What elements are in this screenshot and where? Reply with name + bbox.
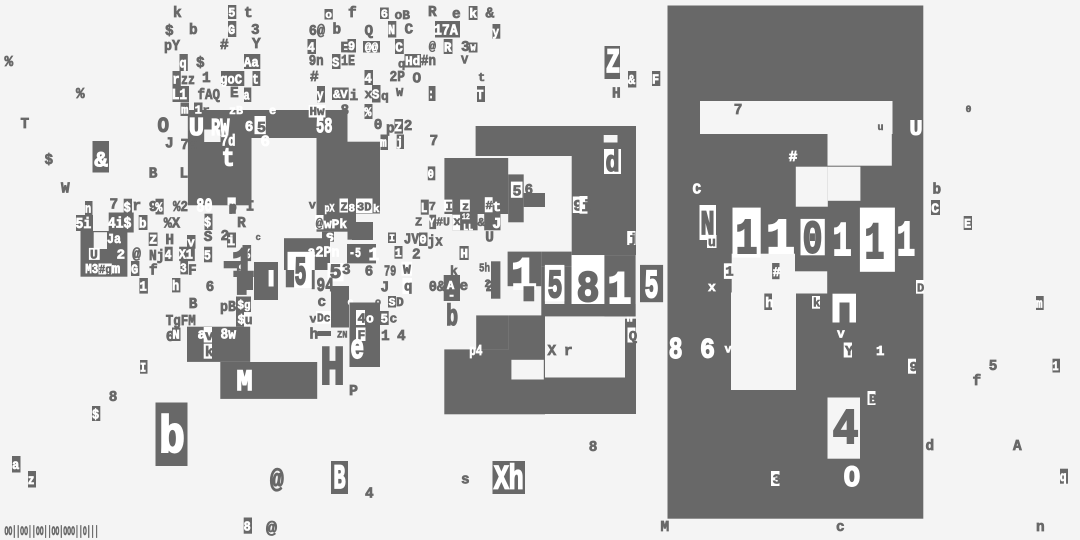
svg-text:@@: @@ bbox=[365, 43, 379, 55]
svg-text:j: j bbox=[629, 232, 637, 247]
svg-text:x: x bbox=[454, 215, 461, 229]
svg-text:Y: Y bbox=[429, 215, 435, 230]
svg-text:Z: Z bbox=[149, 233, 157, 248]
svg-text:9: 9 bbox=[910, 360, 918, 376]
svg-text:1: 1 bbox=[381, 329, 390, 345]
svg-text:8w: 8w bbox=[221, 327, 237, 344]
svg-text:1: 1 bbox=[195, 103, 202, 117]
svg-text:O: O bbox=[413, 72, 422, 88]
svg-text:5h: 5h bbox=[479, 262, 490, 276]
svg-text:pX: pX bbox=[325, 204, 335, 216]
svg-text:@: @ bbox=[266, 520, 277, 539]
svg-text:jx: jx bbox=[428, 235, 443, 251]
svg-text:T: T bbox=[21, 117, 30, 133]
svg-text:6@: 6@ bbox=[309, 24, 326, 40]
svg-text:L1: L1 bbox=[172, 87, 187, 104]
svg-text:n: n bbox=[85, 201, 91, 216]
svg-text:1: 1 bbox=[736, 212, 758, 269]
svg-text:W: W bbox=[396, 86, 404, 100]
svg-text:2: 2 bbox=[412, 248, 421, 264]
svg-text:0&: 0& bbox=[429, 280, 446, 296]
svg-text:P: P bbox=[349, 383, 358, 400]
svg-text:I: I bbox=[389, 234, 395, 245]
svg-text::: : bbox=[428, 87, 434, 102]
svg-text:d: d bbox=[926, 439, 935, 455]
svg-text:1: 1 bbox=[139, 280, 146, 296]
svg-text:1: 1 bbox=[833, 216, 852, 270]
svg-text:t: t bbox=[244, 6, 253, 22]
svg-text:%: % bbox=[76, 87, 85, 103]
svg-text:k: k bbox=[205, 345, 213, 361]
svg-text:#n: #n bbox=[421, 54, 436, 70]
svg-text:8: 8 bbox=[669, 333, 683, 368]
svg-text:3D: 3D bbox=[357, 201, 372, 215]
svg-text:b: b bbox=[933, 183, 942, 199]
svg-text:JV: JV bbox=[404, 233, 420, 249]
svg-text:#: # bbox=[773, 265, 781, 280]
svg-text:O: O bbox=[158, 114, 170, 139]
svg-text:4: 4 bbox=[365, 487, 374, 503]
svg-text:5: 5 bbox=[645, 265, 659, 310]
svg-text:oB: oB bbox=[395, 8, 411, 23]
svg-text:W: W bbox=[61, 182, 70, 198]
svg-text:a: a bbox=[243, 89, 250, 105]
svg-text:e: e bbox=[452, 7, 461, 23]
svg-text:u: u bbox=[708, 235, 716, 250]
svg-text:t: t bbox=[252, 72, 259, 88]
svg-text:&: & bbox=[95, 149, 109, 174]
svg-text:m: m bbox=[181, 103, 188, 117]
svg-text:S: S bbox=[389, 298, 396, 310]
svg-text:$g: $g bbox=[238, 299, 251, 313]
svg-text:F: F bbox=[652, 72, 659, 88]
svg-text:7: 7 bbox=[429, 200, 436, 214]
svg-text:0: 0 bbox=[419, 233, 426, 248]
svg-text:z: z bbox=[28, 473, 35, 489]
svg-text:$: $ bbox=[45, 153, 54, 169]
svg-text:q: q bbox=[404, 280, 412, 296]
svg-text:k: k bbox=[373, 204, 380, 216]
svg-text:a2Pn: a2Pn bbox=[308, 245, 340, 262]
svg-text:D: D bbox=[917, 282, 924, 296]
svg-text:%: % bbox=[365, 105, 372, 120]
svg-text:58: 58 bbox=[316, 115, 333, 140]
svg-text:3: 3 bbox=[180, 261, 187, 276]
svg-text:4: 4 bbox=[365, 71, 372, 87]
svg-text:5: 5 bbox=[295, 252, 307, 297]
svg-text:q: q bbox=[381, 89, 389, 104]
svg-text:t: t bbox=[222, 144, 235, 174]
svg-text:M3: M3 bbox=[85, 262, 98, 278]
svg-text:4: 4 bbox=[833, 402, 859, 459]
svg-text:8: 8 bbox=[109, 390, 118, 406]
svg-text:Q: Q bbox=[629, 329, 637, 345]
svg-text:b: b bbox=[189, 23, 198, 39]
svg-text:r: r bbox=[564, 344, 573, 360]
svg-text:8: 8 bbox=[341, 104, 350, 120]
svg-text:q: q bbox=[1060, 470, 1067, 486]
svg-text:zB: zB bbox=[229, 104, 243, 118]
svg-text:M: M bbox=[661, 520, 670, 536]
svg-text:3: 3 bbox=[773, 473, 781, 489]
svg-text:Dc: Dc bbox=[317, 312, 331, 326]
svg-text:3: 3 bbox=[342, 263, 351, 279]
svg-text:J: J bbox=[381, 281, 390, 297]
svg-text:1: 1 bbox=[1052, 359, 1058, 374]
svg-text:r: r bbox=[172, 72, 179, 88]
svg-text:$: $ bbox=[165, 24, 174, 40]
svg-text:B: B bbox=[149, 167, 158, 183]
svg-text:r: r bbox=[133, 199, 142, 215]
svg-text:S: S bbox=[204, 230, 213, 246]
svg-text:0: 0 bbox=[803, 215, 823, 267]
svg-text:t: t bbox=[493, 200, 501, 216]
svg-text:R: R bbox=[428, 5, 437, 21]
svg-text:h: h bbox=[172, 279, 179, 295]
svg-text:6: 6 bbox=[365, 265, 374, 281]
svg-text:i: i bbox=[582, 198, 592, 216]
svg-text:v: v bbox=[725, 343, 732, 357]
svg-text:Ja: Ja bbox=[107, 232, 121, 248]
svg-text:m: m bbox=[380, 136, 386, 151]
svg-text:F: F bbox=[188, 263, 197, 279]
svg-text:t: t bbox=[478, 71, 485, 85]
svg-text:X: X bbox=[548, 344, 557, 360]
svg-text:5: 5 bbox=[989, 359, 998, 375]
svg-text:Z: Z bbox=[415, 216, 422, 230]
svg-text:C: C bbox=[693, 183, 702, 199]
svg-text:n: n bbox=[1036, 520, 1045, 536]
svg-text:Aa: Aa bbox=[244, 55, 260, 71]
svg-text:y: y bbox=[493, 25, 500, 40]
svg-text:$: $ bbox=[196, 56, 205, 72]
svg-text:8: 8 bbox=[577, 265, 600, 315]
svg-text:1: 1 bbox=[725, 265, 733, 281]
svg-text:fAQ: fAQ bbox=[198, 88, 221, 104]
svg-text:5: 5 bbox=[548, 265, 563, 310]
svg-text:N: N bbox=[172, 328, 179, 343]
svg-text:E: E bbox=[964, 216, 971, 231]
svg-text:u: u bbox=[245, 313, 253, 328]
svg-text:C: C bbox=[405, 23, 414, 39]
svg-text:pB: pB bbox=[220, 300, 236, 316]
svg-text:$: $ bbox=[92, 407, 99, 423]
svg-text:9n: 9n bbox=[309, 54, 324, 70]
svg-text:v: v bbox=[837, 327, 845, 342]
svg-text:@: @ bbox=[270, 465, 284, 495]
svg-text:c: c bbox=[318, 295, 327, 311]
svg-text:#: # bbox=[789, 150, 798, 166]
svg-text:b: b bbox=[159, 409, 185, 468]
svg-text:0: 0 bbox=[428, 167, 434, 182]
svg-text:f: f bbox=[348, 6, 357, 22]
svg-text:p4: p4 bbox=[469, 343, 482, 360]
svg-text:4i$: 4i$ bbox=[108, 216, 132, 233]
svg-text:N: N bbox=[388, 23, 395, 39]
svg-text:d: d bbox=[606, 147, 620, 181]
svg-text:-5: -5 bbox=[349, 246, 361, 262]
svg-text:5i: 5i bbox=[76, 216, 92, 233]
svg-text:W: W bbox=[470, 44, 476, 54]
svg-text:1: 1 bbox=[897, 214, 916, 271]
svg-text:8: 8 bbox=[244, 519, 251, 535]
svg-text:B: B bbox=[189, 297, 198, 313]
svg-text:q: q bbox=[179, 56, 186, 72]
svg-text:G: G bbox=[228, 23, 235, 39]
svg-text:#: # bbox=[310, 70, 319, 86]
svg-text:4: 4 bbox=[358, 312, 366, 328]
svg-text:c: c bbox=[390, 312, 398, 327]
svg-text:@: @ bbox=[316, 217, 323, 231]
svg-text:y: y bbox=[317, 88, 324, 104]
svg-text:I: I bbox=[446, 200, 453, 214]
svg-text:x: x bbox=[708, 280, 716, 295]
svg-text:J: J bbox=[492, 216, 501, 233]
svg-text:k: k bbox=[450, 264, 458, 279]
svg-text:9: 9 bbox=[348, 39, 355, 54]
svg-text:b: b bbox=[139, 216, 147, 232]
svg-text:v: v bbox=[310, 313, 317, 327]
svg-text:k: k bbox=[813, 297, 820, 311]
svg-text:7x: 7x bbox=[181, 138, 198, 154]
svg-text:&: & bbox=[478, 216, 486, 230]
svg-text:O: O bbox=[844, 462, 860, 496]
svg-text:i: i bbox=[350, 89, 359, 105]
svg-text:#g: #g bbox=[99, 263, 112, 277]
svg-text:5: 5 bbox=[228, 5, 235, 20]
svg-text:#: # bbox=[220, 38, 229, 54]
svg-text:H: H bbox=[460, 246, 468, 261]
svg-text:6: 6 bbox=[245, 120, 254, 136]
svg-text:e: e bbox=[269, 104, 276, 118]
svg-text:H: H bbox=[612, 87, 621, 103]
svg-text:6: 6 bbox=[381, 7, 388, 21]
svg-text:B: B bbox=[334, 461, 346, 499]
svg-text:c: c bbox=[256, 233, 261, 243]
svg-text:Z: Z bbox=[341, 201, 348, 215]
svg-text:b: b bbox=[446, 301, 458, 335]
svg-text:4: 4 bbox=[165, 247, 172, 262]
svg-text:s: s bbox=[461, 473, 470, 489]
svg-text:U: U bbox=[90, 248, 98, 263]
svg-text:Z: Z bbox=[395, 120, 402, 136]
svg-text:%: % bbox=[155, 200, 162, 216]
svg-text:A: A bbox=[1013, 439, 1022, 455]
svg-text:Nj: Nj bbox=[149, 249, 165, 265]
svg-text:C: C bbox=[395, 40, 403, 56]
svg-text:C: C bbox=[931, 201, 939, 217]
svg-text:Q: Q bbox=[365, 24, 374, 40]
svg-text:u: u bbox=[878, 123, 884, 134]
svg-text:2: 2 bbox=[404, 119, 413, 135]
svg-text:%2: %2 bbox=[173, 200, 188, 216]
svg-text:6: 6 bbox=[260, 133, 270, 151]
svg-text:&V: &V bbox=[333, 88, 348, 102]
svg-text:0: 0 bbox=[374, 118, 383, 134]
svg-text:h: h bbox=[765, 296, 773, 312]
svg-text:j: j bbox=[396, 135, 402, 150]
svg-text:D: D bbox=[396, 295, 404, 310]
svg-text:1: 1 bbox=[608, 265, 632, 317]
svg-text:k: k bbox=[469, 6, 477, 21]
svg-text:&: & bbox=[486, 7, 495, 23]
svg-text:B: B bbox=[869, 392, 877, 407]
svg-text:f: f bbox=[973, 374, 982, 390]
svg-text:a: a bbox=[12, 458, 20, 474]
svg-text:G: G bbox=[131, 262, 138, 278]
svg-text:4: 4 bbox=[397, 329, 406, 345]
svg-text:E: E bbox=[230, 86, 239, 102]
svg-text:v: v bbox=[205, 329, 214, 345]
svg-text:z: z bbox=[462, 200, 469, 214]
svg-text:8: 8 bbox=[589, 440, 598, 456]
svg-text:1: 1 bbox=[202, 71, 211, 87]
svg-text:5: 5 bbox=[513, 184, 522, 201]
svg-text:S: S bbox=[332, 55, 339, 71]
svg-text:J: J bbox=[165, 137, 174, 153]
svg-text:I: I bbox=[140, 360, 146, 375]
svg-text:U: U bbox=[910, 117, 923, 142]
svg-text:1: 1 bbox=[865, 215, 885, 274]
svg-text:b: b bbox=[333, 23, 342, 39]
svg-text:7: 7 bbox=[430, 134, 439, 150]
svg-text:5: 5 bbox=[204, 248, 211, 264]
svg-text:1: 1 bbox=[766, 212, 795, 269]
svg-text:6: 6 bbox=[525, 183, 534, 199]
svg-text:f: f bbox=[149, 263, 158, 279]
svg-text:12: 12 bbox=[462, 213, 470, 222]
svg-text:Y: Y bbox=[845, 344, 854, 360]
svg-text:1E: 1E bbox=[341, 54, 355, 70]
svg-text:S: S bbox=[372, 88, 379, 104]
svg-text:I: I bbox=[246, 199, 255, 215]
svg-text:T: T bbox=[477, 88, 484, 104]
svg-text:v: v bbox=[309, 199, 316, 213]
svg-text:7: 7 bbox=[734, 103, 743, 119]
svg-text:pY: pY bbox=[164, 39, 180, 55]
svg-text:LL: LL bbox=[463, 223, 473, 233]
svg-text:h: h bbox=[310, 328, 319, 344]
svg-text:8: 8 bbox=[349, 204, 356, 216]
svg-text:%X: %X bbox=[164, 217, 181, 233]
svg-text:Hd: Hd bbox=[405, 54, 420, 69]
svg-text:o: o bbox=[325, 10, 332, 22]
svg-text:M: M bbox=[237, 366, 253, 400]
svg-text:Z: Z bbox=[606, 45, 620, 83]
svg-text:o: o bbox=[366, 312, 374, 327]
svg-text:1: 1 bbox=[395, 246, 402, 260]
svg-text:79: 79 bbox=[384, 265, 396, 281]
svg-text:p: p bbox=[229, 200, 237, 215]
svg-text:R: R bbox=[237, 216, 246, 232]
svg-text:c: c bbox=[836, 520, 845, 536]
svg-text:2: 2 bbox=[484, 279, 491, 291]
svg-text:17A: 17A bbox=[434, 22, 458, 39]
svg-text:OO||OO||OO||OO|OOO||O|||: OO||OO||OO||OO|OOO||O||| bbox=[5, 524, 99, 539]
svg-text:0: 0 bbox=[966, 105, 972, 116]
svg-text:2P: 2P bbox=[390, 70, 406, 86]
svg-text:6: 6 bbox=[206, 280, 215, 296]
svg-text:%: % bbox=[5, 55, 14, 71]
svg-text:5: 5 bbox=[380, 311, 388, 326]
svg-text:7: 7 bbox=[110, 198, 119, 214]
svg-text:V: V bbox=[461, 54, 469, 68]
svg-text:W: W bbox=[403, 263, 411, 278]
svg-text:6: 6 bbox=[700, 336, 715, 367]
svg-text:1: 1 bbox=[876, 344, 884, 360]
svg-text:@: @ bbox=[429, 40, 436, 54]
svg-text:R: R bbox=[444, 40, 452, 56]
svg-text:Y: Y bbox=[252, 37, 261, 53]
svg-text:H: H bbox=[320, 337, 345, 401]
svg-text:1: 1 bbox=[369, 246, 380, 266]
svg-text:L: L bbox=[180, 167, 189, 183]
svg-text:m: m bbox=[112, 262, 120, 278]
svg-text:e: e bbox=[460, 279, 469, 295]
svg-text:m: m bbox=[1036, 296, 1043, 311]
svg-text:r: r bbox=[203, 104, 210, 118]
svg-text:Xh: Xh bbox=[494, 462, 524, 500]
svg-text:e: e bbox=[351, 331, 365, 369]
svg-text:k: k bbox=[173, 6, 182, 22]
svg-text:#U: #U bbox=[436, 216, 450, 230]
svg-text:&: & bbox=[628, 73, 636, 89]
